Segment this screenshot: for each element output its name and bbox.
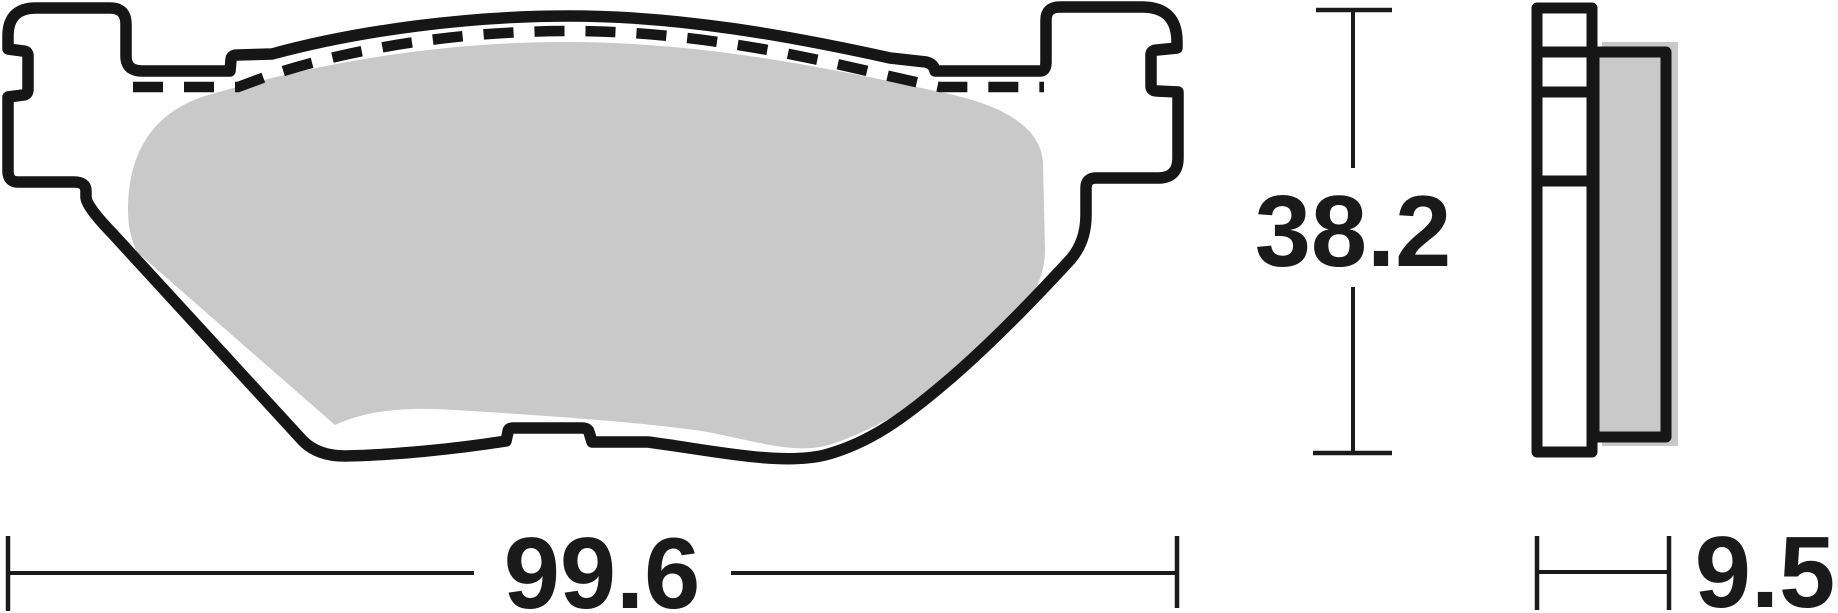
technical-drawing-svg: 99.6 38.2 9.5 — [0, 0, 1838, 613]
drawing-canvas: 99.6 38.2 9.5 — [0, 0, 1838, 613]
friction-material-side — [1594, 52, 1666, 437]
brake-pad-side-view — [1532, 8, 1678, 452]
brake-pad-front-view — [8, 7, 1178, 459]
backplate-side — [1537, 8, 1592, 452]
dimension-label-width: 99.6 — [504, 518, 701, 613]
friction-material-front — [128, 42, 1045, 448]
dimension-label-thickness: 9.5 — [1695, 517, 1835, 613]
dimension-label-height: 38.2 — [1255, 176, 1452, 288]
